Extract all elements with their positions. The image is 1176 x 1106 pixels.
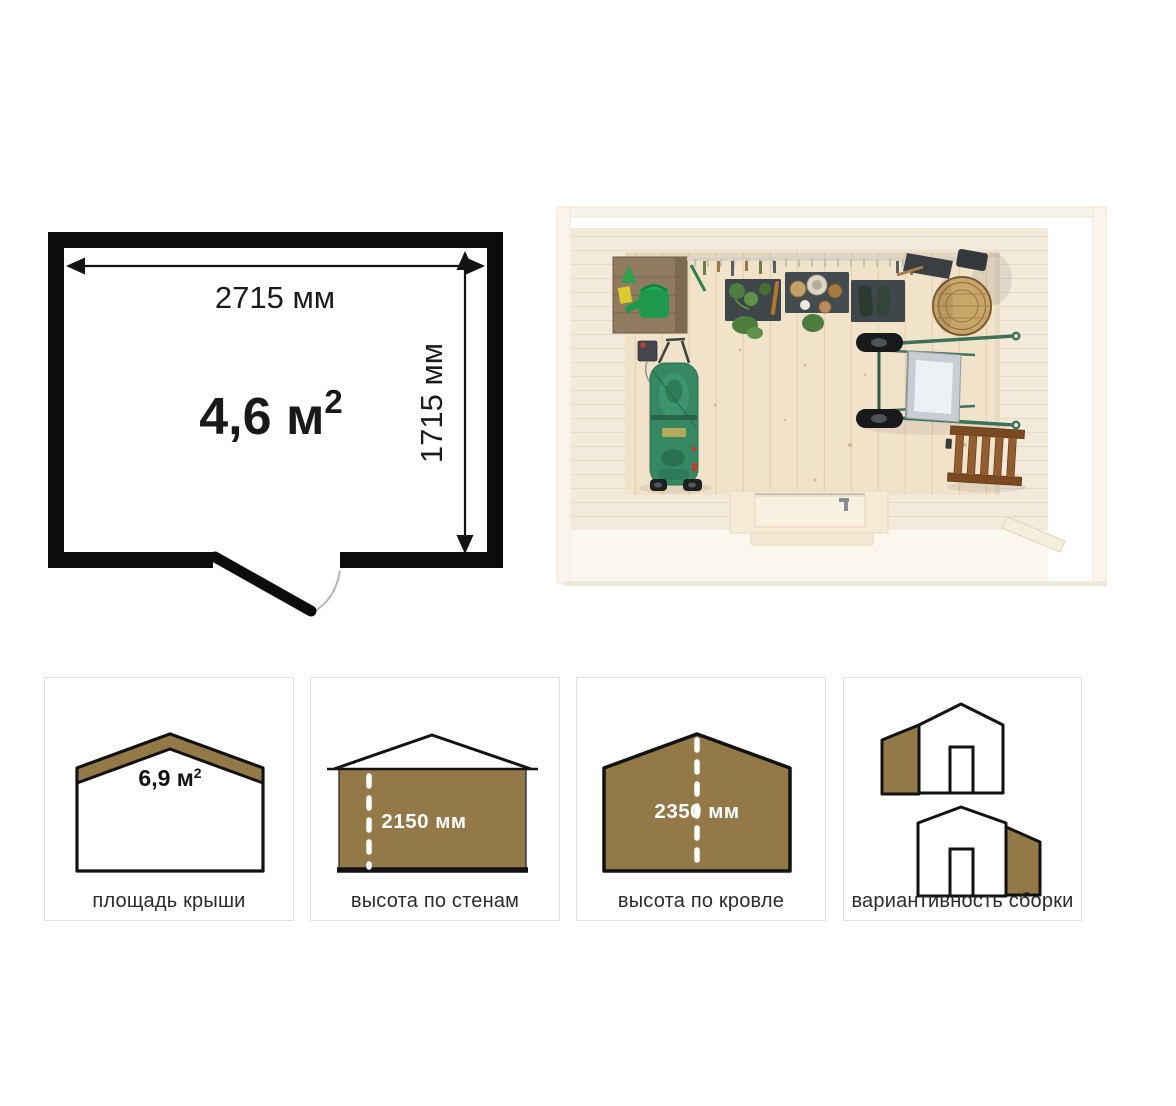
- roof-area-value: 6,9 м2: [138, 765, 201, 791]
- assembly-variants-icon: [844, 678, 1083, 906]
- shed-product-infographic: 2715 мм 1715 мм 4,6 м2: [0, 0, 1176, 1106]
- wooden-barrel: [932, 277, 992, 335]
- wall-shadow: [625, 252, 1000, 257]
- wooden-ladder: [943, 426, 1024, 486]
- card-label: площадь крыши: [45, 890, 293, 913]
- red-indicator: [640, 342, 645, 347]
- left-post: [557, 207, 570, 583]
- interior-top-view-render: [555, 195, 1115, 605]
- house-annex-right-icon: [918, 807, 1040, 896]
- right-post: [1093, 207, 1106, 583]
- door-threshold: [730, 491, 888, 545]
- arrow-down-icon: [457, 535, 474, 554]
- card-label: высота по кровле: [577, 890, 825, 913]
- hanging-plant-2: [802, 314, 824, 332]
- plan-door-swing-arc: [313, 571, 340, 612]
- card-assembly-variants: вариантивность сборки: [843, 677, 1082, 921]
- plan-area-label: 4,6 м2: [199, 383, 343, 446]
- plan-height-dimension: 1715 мм: [414, 251, 474, 554]
- ridge-height-icon: 2350 мм: [577, 678, 827, 893]
- card-wall-height: 2150 мм высота по стенам: [310, 677, 560, 921]
- base-strip: [563, 581, 1107, 586]
- card-roof-area: 6,9 м2 площадь крыши: [44, 677, 294, 921]
- door-step: [751, 533, 873, 545]
- floor-plan: 2715 мм 1715 мм 4,6 м2: [40, 220, 520, 620]
- plan-area-value: 4,6 м: [199, 388, 324, 446]
- arrow-left-icon: [66, 258, 85, 275]
- house-annex-left-icon: [882, 704, 1003, 794]
- card-ridge-height: 2350 мм высота по кровле: [576, 677, 826, 921]
- plan-height-label: 1715 мм: [414, 343, 449, 463]
- wall-height-icon: 2150 мм: [311, 678, 561, 893]
- roof-area-number: 6,9 м: [138, 765, 193, 791]
- plan-width-dimension: 2715 мм: [66, 258, 485, 316]
- door-handle-bar: [844, 498, 848, 511]
- card-label: вариантивность сборки: [844, 890, 1081, 913]
- plan-width-label: 2715 мм: [215, 280, 335, 315]
- wall-height-value: 2150 мм: [381, 810, 466, 833]
- plan-area-superscript: 2: [324, 383, 342, 420]
- ridge-height-value: 2350 мм: [654, 800, 739, 823]
- roof-area-icon: 6,9 м2: [45, 678, 295, 893]
- card-label: высота по стенам: [311, 890, 559, 913]
- top-beam: [557, 207, 1106, 217]
- roof-area-superscript: 2: [194, 765, 202, 781]
